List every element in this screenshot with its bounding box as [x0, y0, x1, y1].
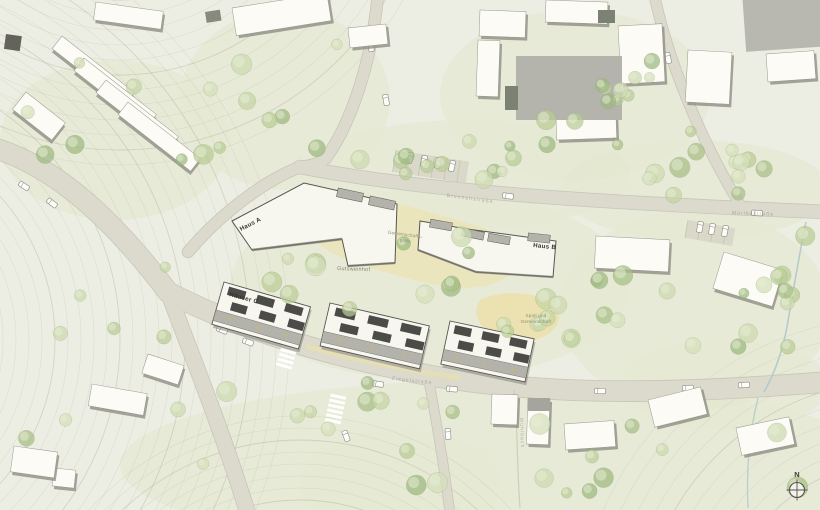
north-label: N [794, 470, 799, 479]
tree-highlight [240, 94, 250, 104]
tree-highlight [332, 40, 338, 46]
tree [539, 136, 556, 153]
tree-highlight [161, 263, 167, 269]
car [502, 193, 514, 200]
tree [659, 283, 675, 299]
tree-highlight [453, 228, 464, 239]
tree [669, 157, 690, 178]
tree-highlight [322, 423, 330, 431]
building-roof [618, 24, 665, 84]
tree-highlight [401, 445, 409, 453]
tree [625, 419, 640, 434]
existing-building [141, 354, 186, 388]
tree-highlight [538, 290, 550, 302]
tree-highlight [597, 80, 605, 88]
tree-highlight [686, 127, 692, 133]
existing-building [10, 446, 60, 481]
existing-building [479, 10, 528, 41]
tree [304, 406, 317, 419]
existing-building [348, 24, 390, 51]
tree [107, 322, 120, 335]
tree [643, 171, 657, 185]
tree [462, 247, 474, 259]
tree-highlight [782, 341, 790, 349]
tree [398, 148, 414, 164]
tree [66, 135, 85, 154]
car [445, 428, 451, 439]
tree-highlight [38, 147, 48, 157]
tree [601, 94, 616, 109]
tree-highlight [374, 394, 384, 404]
tree-highlight [568, 114, 577, 123]
tree [321, 422, 335, 436]
tree-highlight [233, 56, 244, 67]
tree [731, 187, 745, 201]
tree-highlight [551, 298, 561, 308]
tree-highlight [75, 291, 81, 297]
existing-building [594, 236, 672, 275]
tree [778, 283, 793, 298]
tree [406, 475, 426, 495]
tree [644, 53, 660, 69]
tree-highlight [502, 326, 509, 333]
gray-structure [505, 86, 518, 110]
tree-highlight [291, 410, 299, 418]
tree [399, 167, 412, 180]
tree [613, 265, 633, 285]
tree-highlight [612, 314, 620, 322]
tree [126, 79, 142, 95]
tree-highlight [740, 326, 750, 336]
existing-building [564, 420, 618, 453]
tree-highlight [195, 146, 206, 157]
tree [767, 423, 786, 442]
tree-highlight [646, 55, 655, 64]
tree [566, 113, 583, 130]
tree-highlight [531, 416, 542, 427]
tree [262, 112, 278, 128]
tree-highlight [352, 152, 362, 162]
tree [770, 268, 787, 285]
car-body [594, 388, 605, 394]
tree [446, 405, 460, 419]
tree [628, 71, 641, 84]
gray-structure [4, 34, 22, 51]
label-courtyard: Gutsweinhof [337, 266, 371, 273]
tree-highlight [772, 270, 781, 279]
tree-highlight [740, 289, 746, 295]
tree [796, 226, 815, 245]
tree-highlight [75, 59, 81, 65]
tree [594, 468, 614, 488]
tree [756, 161, 773, 178]
tree-highlight [205, 83, 213, 91]
tree [595, 78, 609, 92]
tree [756, 277, 772, 293]
existing-building [685, 50, 734, 107]
roof-band [528, 398, 550, 411]
label-play-line2: Gemeinschaft [521, 319, 552, 324]
gray-structure [598, 10, 615, 23]
building-roof [142, 354, 184, 385]
building-roof [348, 24, 388, 48]
tree-highlight [172, 403, 180, 411]
tree [417, 398, 429, 410]
label-stream: Mühlbach [518, 418, 525, 449]
tree [197, 458, 209, 470]
existing-building [93, 2, 165, 33]
tree-highlight [689, 145, 698, 154]
tree-highlight [400, 168, 407, 175]
tree-highlight [626, 420, 634, 428]
tree-highlight [734, 155, 743, 164]
building-roof [564, 421, 616, 450]
tree-highlight [602, 95, 610, 103]
tree-highlight [613, 140, 619, 146]
tree-highlight [630, 72, 637, 79]
tree-highlight [797, 228, 808, 239]
tree [475, 170, 493, 188]
tree [18, 430, 34, 446]
tree-highlight [20, 432, 29, 441]
tree [451, 226, 471, 246]
tree-highlight [60, 415, 67, 422]
tree-highlight [307, 258, 318, 269]
tree [74, 290, 86, 302]
tree-highlight [537, 471, 547, 481]
tree [170, 402, 185, 417]
tree-highlight [67, 137, 77, 147]
tree-highlight [55, 328, 63, 336]
tree-highlight [263, 114, 272, 123]
building-roof [594, 236, 670, 272]
tree [564, 331, 579, 346]
tree [780, 339, 795, 354]
tree [160, 262, 171, 273]
tree-highlight [422, 161, 429, 168]
tree-highlight [769, 425, 779, 435]
tree [462, 134, 476, 148]
tree [308, 140, 325, 157]
tree-highlight [436, 158, 445, 167]
tree-highlight [779, 285, 787, 293]
tree [399, 443, 414, 458]
tree-highlight [264, 274, 275, 285]
tree-highlight [644, 173, 652, 181]
car [738, 382, 749, 388]
tree [282, 253, 294, 265]
tree-highlight [661, 284, 670, 293]
car-body [502, 193, 514, 200]
tree [612, 139, 623, 150]
car [446, 386, 457, 392]
tree [416, 285, 434, 303]
tree [561, 487, 572, 498]
tree-highlight [757, 278, 766, 287]
tree-highlight [464, 136, 472, 144]
tree-highlight [128, 80, 137, 89]
building-roof [766, 51, 816, 82]
building-roof [88, 384, 147, 415]
tree [231, 54, 252, 75]
tree-highlight [732, 340, 741, 349]
car-body [445, 428, 451, 439]
tree [731, 169, 745, 183]
tree-highlight [359, 394, 370, 405]
tree [238, 92, 256, 110]
tree [505, 150, 521, 166]
car [594, 388, 605, 394]
tree-highlight [562, 489, 568, 495]
tree [59, 413, 72, 426]
tree-highlight [596, 470, 607, 481]
tree [644, 72, 654, 82]
tree [36, 146, 54, 164]
tree [665, 187, 681, 203]
tree [21, 105, 34, 118]
tree-highlight [418, 287, 428, 297]
building-roof [685, 50, 732, 104]
tree-highlight [310, 141, 319, 150]
tree [444, 276, 460, 292]
tree [529, 414, 550, 435]
tree-highlight [276, 111, 284, 119]
tree-highlight [419, 399, 425, 405]
tree-highlight [215, 143, 222, 150]
tree [739, 324, 758, 343]
tree-highlight [306, 407, 313, 414]
tree [193, 144, 213, 164]
tree [214, 142, 226, 154]
tree [497, 166, 508, 177]
tree [582, 483, 597, 498]
tree-highlight [540, 138, 549, 147]
tree-highlight [477, 172, 487, 182]
tree [331, 39, 342, 50]
tree-highlight [408, 477, 419, 488]
tree-highlight [587, 451, 594, 458]
tree-highlight [344, 303, 352, 311]
tree-highlight [219, 383, 230, 394]
tree-highlight [538, 112, 549, 123]
tree [262, 272, 282, 292]
tree [739, 288, 749, 298]
tree-highlight [109, 323, 116, 330]
tree [74, 58, 85, 69]
existing-building [476, 40, 502, 100]
tree-highlight [657, 445, 664, 452]
tree-highlight [615, 267, 626, 278]
site-plan-svg: Haus A Haus B Häuser C Gutsweinhof Gemei… [0, 0, 820, 510]
tree-highlight [429, 475, 440, 486]
tree-highlight [446, 277, 455, 286]
tree [536, 110, 556, 130]
site-plan: Haus A Haus B Häuser C Gutsweinhof Gemei… [0, 0, 820, 510]
tree-highlight [614, 84, 622, 92]
tree-highlight [687, 339, 696, 348]
building-roof [476, 40, 500, 97]
tree [280, 285, 298, 303]
tree [591, 272, 608, 289]
contour-line [0, 177, 3, 503]
label-play-line1: Spiel und [526, 313, 547, 318]
tree [726, 144, 739, 157]
tree [685, 126, 696, 137]
tree-highlight [667, 189, 676, 198]
building-roof [491, 394, 518, 425]
gray-structure [205, 10, 222, 23]
tree-highlight [645, 73, 651, 79]
tree [434, 156, 450, 172]
tree [656, 443, 668, 455]
tree [372, 392, 390, 410]
tree-highlight [598, 308, 607, 317]
gray-structure [742, 0, 820, 52]
tree-highlight [566, 333, 574, 341]
tree-highlight [593, 273, 602, 282]
tree [361, 376, 374, 389]
tree-highlight [447, 406, 455, 414]
tree [685, 337, 701, 353]
tree-highlight [583, 485, 591, 493]
tree [427, 473, 447, 493]
tree [157, 330, 171, 344]
building-roof [479, 10, 526, 38]
tree-highlight [177, 155, 183, 161]
car-body [446, 386, 457, 392]
tree [733, 154, 750, 171]
tree [420, 159, 433, 172]
tree [53, 326, 68, 341]
tree [290, 408, 305, 423]
tree [613, 82, 628, 97]
tree [342, 301, 357, 316]
tree-highlight [757, 162, 766, 171]
tree [501, 325, 514, 338]
existing-building [618, 24, 667, 87]
tree-highlight [498, 167, 504, 173]
tree-highlight [199, 459, 205, 465]
tree-highlight [22, 107, 29, 114]
tree-highlight [733, 171, 741, 179]
tree-highlight [400, 150, 409, 159]
existing-building [766, 50, 818, 84]
tree-highlight [158, 331, 166, 339]
tree [585, 450, 598, 463]
tree-highlight [733, 188, 741, 196]
car-body [738, 382, 749, 388]
tree [351, 150, 370, 169]
tree [216, 381, 236, 401]
tree-highlight [507, 152, 516, 161]
existing-building [491, 394, 520, 428]
tree-highlight [464, 248, 471, 255]
tree [535, 469, 554, 488]
tree-highlight [282, 287, 292, 297]
tree [610, 313, 625, 328]
tree-highlight [727, 145, 734, 152]
tree-highlight [283, 254, 289, 260]
tree-highlight [362, 378, 369, 385]
tree-highlight [506, 142, 512, 148]
tree [203, 82, 217, 96]
tree [176, 154, 187, 165]
tree [306, 256, 326, 276]
tree [688, 143, 705, 160]
tree-highlight [672, 159, 683, 170]
